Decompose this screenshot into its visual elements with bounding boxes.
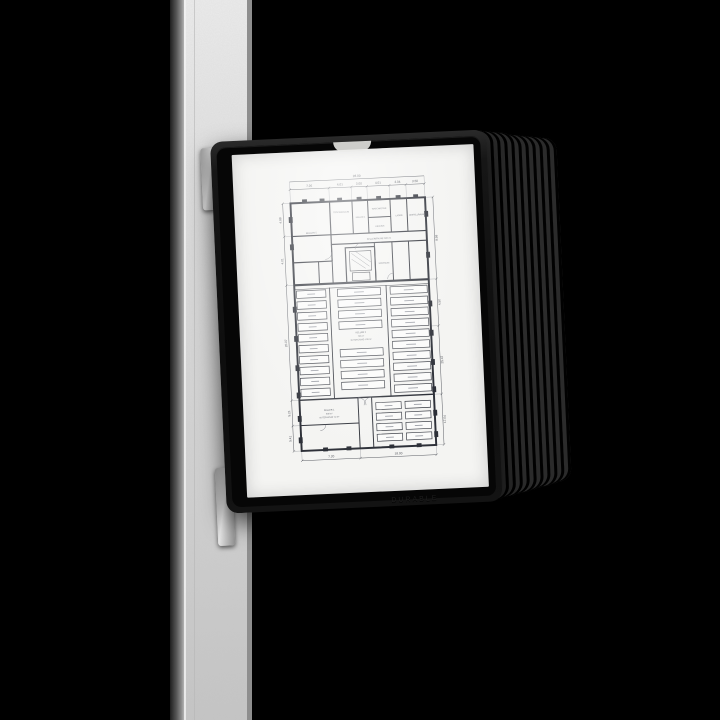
svg-text:NUTZFLÄCHE 7.2 m²: NUTZFLÄCHE 7.2 m² [320,415,340,419]
svg-text:4.88: 4.88 [278,217,282,223]
svg-text:3.50: 3.50 [412,179,418,183]
svg-text:LAGER: LAGER [395,214,403,217]
post-edge-highlight [184,0,186,720]
post-left-edge [170,0,184,720]
svg-text:KELLER 2: KELLER 2 [356,332,367,335]
svg-text:KELLER 1: KELLER 1 [324,409,335,412]
svg-text:25.47: 25.47 [440,355,444,363]
svg-text:KELLER 5: KELLER 5 [306,232,318,235]
stair-core [351,251,371,269]
svg-text:4.50: 4.50 [437,299,441,305]
corridor-label: KELLERRÄUME 320 m² [367,237,392,241]
document-sheet: 28.00 7.26 4.01 3.00 4.01 3.04 3.50 7.20… [232,144,489,498]
storage-stalls [296,285,434,445]
svg-text:NUTZFLÄCHE 4.28 m²: NUTZFLÄCHE 4.28 m² [351,338,372,342]
svg-text:630 m²: 630 m² [326,412,333,415]
svg-text:3.00: 3.00 [356,182,362,186]
svg-text:ABSTELLRAUM: ABSTELLRAUM [409,213,424,217]
svg-text:4.01: 4.01 [337,182,343,186]
wall-display-unit: DURABLE [210,129,503,513]
front-display-panel: DURABLE [210,129,503,513]
svg-text:HEIZRAUM: HEIZRAUM [379,261,390,264]
svg-text:20.07: 20.07 [284,339,288,347]
svg-text:17.04: 17.04 [443,415,447,423]
svg-text:7.26: 7.26 [306,184,312,188]
floor-plan-drawing: 28.00 7.26 4.01 3.00 4.01 3.04 3.50 7.20… [232,144,489,498]
svg-text:7.20: 7.20 [328,454,334,458]
brand-embossed-text: DURABLE [391,495,438,504]
product-photo-scene: DURABLE [0,0,720,720]
svg-text:HEIZUNG: HEIZUNG [375,225,385,227]
svg-text:4.01: 4.01 [280,258,284,264]
dim-top-total: 28.00 [353,174,361,178]
svg-text:KELLER 4: KELLER 4 [356,217,366,219]
svg-text:4.01: 4.01 [375,181,381,185]
svg-text:TROCKENRAUM: TROCKENRAUM [333,210,349,214]
post-seam [194,0,195,720]
svg-text:5.41: 5.41 [288,435,292,441]
svg-text:8.98: 8.98 [434,234,438,240]
svg-text:720 m²: 720 m² [358,335,365,338]
svg-text:18.00: 18.00 [395,451,403,455]
svg-text:5.21: 5.21 [287,410,291,416]
svg-text:3.04: 3.04 [394,180,400,184]
svg-text:WASCHKÜCHE: WASCHKÜCHE [372,207,387,211]
